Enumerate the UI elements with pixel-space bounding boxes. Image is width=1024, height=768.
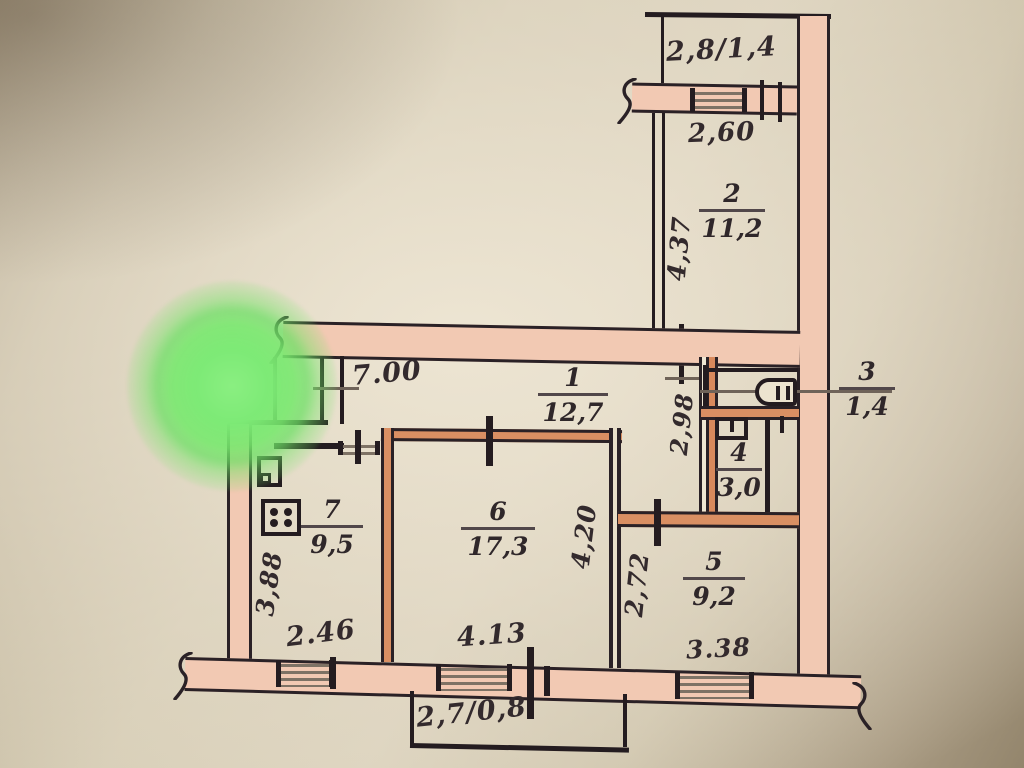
wall-break-curl bbox=[173, 652, 193, 700]
fraction-bar bbox=[538, 393, 608, 396]
door-tick-balcony-2 bbox=[544, 666, 550, 696]
wall-nook-b bbox=[340, 356, 344, 424]
wall-room5-top bbox=[618, 511, 799, 528]
dim-room2-depth: 4,37 bbox=[663, 213, 694, 285]
room-area: 12,7 bbox=[543, 400, 604, 425]
dim-wc-depth: 2,98 bbox=[667, 389, 698, 459]
door-tick-balcony bbox=[527, 647, 534, 719]
wall-right-exterior bbox=[797, 16, 830, 677]
room-number: 1 bbox=[564, 365, 581, 390]
door-tick-room6 bbox=[486, 416, 493, 466]
wall-break-curl bbox=[852, 682, 872, 730]
room-number: 2 bbox=[723, 181, 740, 206]
window-top-tick-right bbox=[778, 82, 782, 122]
window-room6-bottom bbox=[436, 664, 512, 691]
room-area: 11,2 bbox=[702, 216, 763, 241]
dim-room5-width: 3.38 bbox=[685, 634, 751, 662]
balcony-left-line bbox=[410, 691, 414, 747]
dim-bottom-balcony: 2,7/0,8 bbox=[415, 693, 528, 731]
room-number: 3 bbox=[858, 359, 875, 384]
green-highlight-dot bbox=[127, 281, 337, 491]
room-area: 17,3 bbox=[468, 534, 529, 559]
floor-plan-photo: 2,8/1,4 2,60 4,37 7.00 2,98 3,88 2.46 4,… bbox=[0, 0, 1024, 768]
toilet-icon bbox=[755, 378, 797, 406]
wall-room6-right bbox=[609, 428, 621, 668]
door-tick-wc bbox=[703, 365, 708, 411]
wall-tick-bottom-1 bbox=[330, 657, 336, 689]
room-number: 5 bbox=[705, 549, 722, 574]
room-label-6: 6 17,3 bbox=[461, 499, 535, 559]
room-label-7: 7 9,5 bbox=[301, 497, 363, 557]
room-number: 6 bbox=[489, 499, 506, 524]
dim-kitchen-width: 2.46 bbox=[285, 616, 358, 651]
dim-top-balcony: 2,8/1,4 bbox=[665, 33, 777, 66]
window-kitchen-bottom bbox=[276, 660, 334, 687]
wall-balcony-left bbox=[661, 17, 664, 87]
fraction-bar bbox=[716, 468, 762, 471]
wall-room2-left-b bbox=[662, 113, 665, 331]
fraction-bar bbox=[461, 527, 535, 530]
dim-top-window: 2,60 bbox=[688, 119, 756, 147]
wall-room6-top bbox=[381, 428, 622, 443]
dim-room6-width: 4.13 bbox=[456, 620, 527, 652]
room-number: 4 bbox=[730, 440, 747, 465]
room-area: 3,0 bbox=[717, 475, 761, 500]
sink-icon bbox=[715, 417, 748, 440]
wall-break-curl bbox=[617, 78, 637, 124]
window-room5-bottom bbox=[675, 672, 754, 699]
door-tick-bath bbox=[780, 416, 784, 433]
wall-wc-top bbox=[706, 368, 798, 372]
fraction-bar bbox=[839, 387, 895, 390]
room-label-5: 5 9,2 bbox=[683, 549, 745, 609]
stove-icon bbox=[261, 499, 301, 536]
room-label-1: 1 12,7 bbox=[538, 365, 608, 425]
dim-room5-depth: 2,72 bbox=[621, 547, 653, 621]
door-tick-kitchen bbox=[355, 430, 361, 464]
room-area: 9,2 bbox=[692, 584, 736, 609]
wall-room6-left bbox=[381, 428, 394, 662]
balcony-bottom-line bbox=[410, 743, 629, 753]
room-number: 7 bbox=[323, 497, 340, 522]
room-label-4: 4 3,0 bbox=[716, 440, 762, 500]
room-area: 1,4 bbox=[845, 394, 889, 419]
fraction-bar bbox=[301, 525, 363, 528]
dim-room6-depth: 4,20 bbox=[567, 499, 601, 574]
wall-bath-inner bbox=[765, 420, 770, 518]
wall-room2-left-a bbox=[652, 113, 655, 331]
door-tick-room5 bbox=[654, 499, 661, 546]
fraction-bar bbox=[699, 209, 765, 212]
balcony-right-line bbox=[623, 694, 627, 747]
fraction-bar bbox=[683, 577, 745, 580]
dim-kitchen-depth: 3,88 bbox=[252, 546, 287, 621]
room-area: 9,5 bbox=[310, 532, 354, 557]
window-top bbox=[690, 88, 747, 112]
room-label-2: 2 11,2 bbox=[699, 181, 765, 241]
window-top-tick-left bbox=[760, 80, 764, 120]
room-label-3: 3 1,4 bbox=[839, 359, 895, 419]
dim-hall-width: 7.00 bbox=[351, 357, 423, 390]
